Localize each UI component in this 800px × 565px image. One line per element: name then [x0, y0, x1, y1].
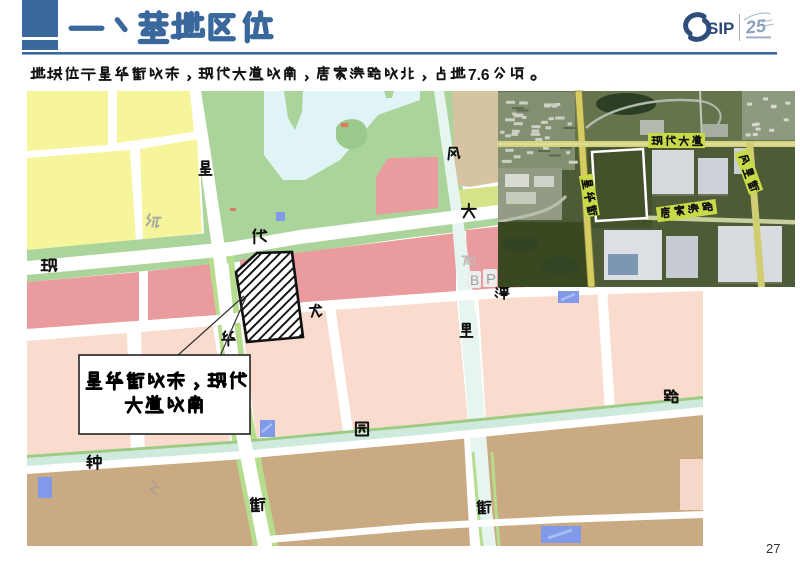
svg-text:7.6: 7.6 [468, 67, 490, 84]
svg-text:25: 25 [744, 15, 768, 37]
svg-text:27: 27 [766, 541, 780, 556]
svg-text:B: B [470, 272, 479, 288]
svg-text:SIP: SIP [707, 19, 734, 38]
svg-text:P: P [486, 271, 496, 288]
